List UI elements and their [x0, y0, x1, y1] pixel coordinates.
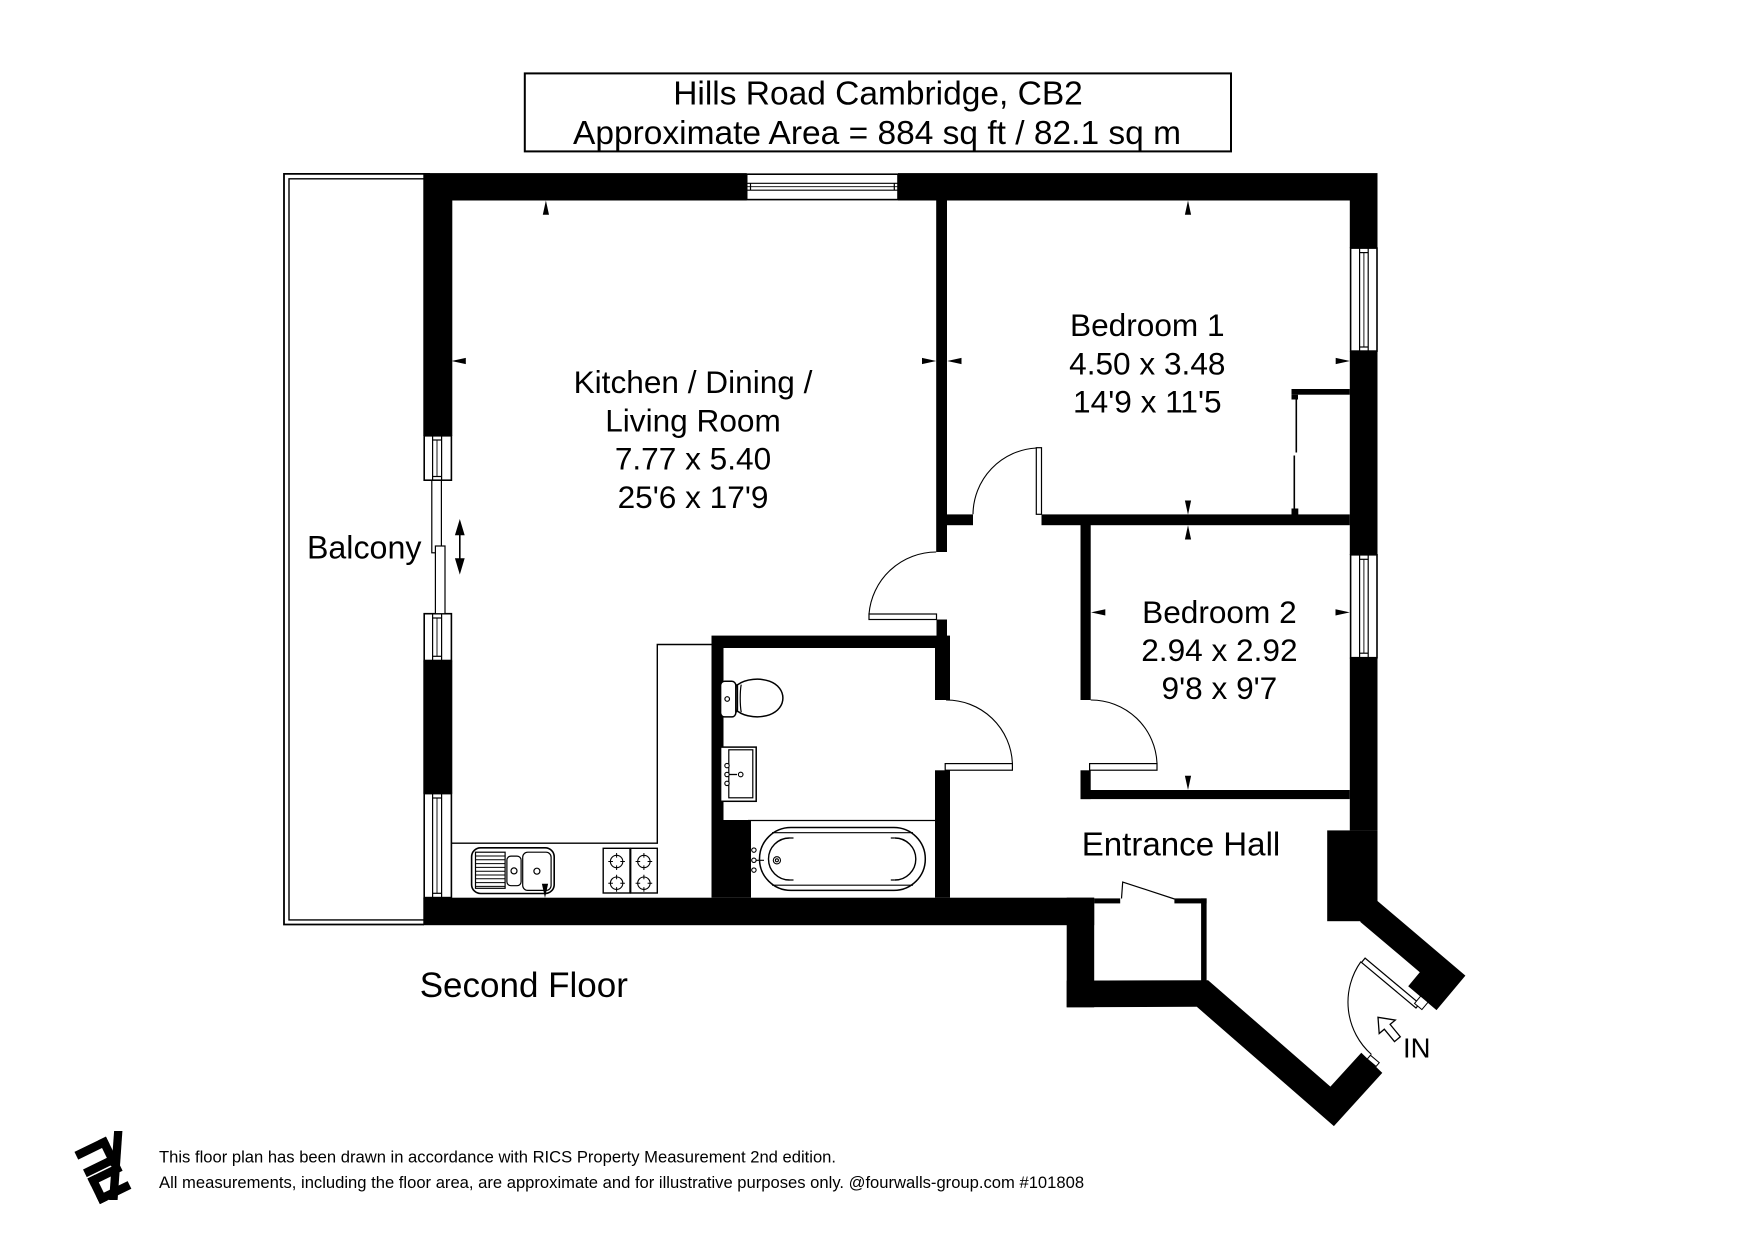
svg-text:Bedroom 2: Bedroom 2	[1142, 594, 1297, 630]
svg-text:Hills Road Cambridge, CB2: Hills Road Cambridge, CB2	[673, 76, 1083, 113]
svg-text:Kitchen / Dining /: Kitchen / Dining /	[574, 364, 813, 400]
svg-text:4.50 x 3.48: 4.50 x 3.48	[1069, 345, 1225, 381]
svg-text:Balcony: Balcony	[307, 529, 422, 565]
svg-text:14'9 x 11'5: 14'9 x 11'5	[1073, 384, 1222, 420]
svg-text:All measurements, including th: All measurements, including the floor ar…	[159, 1173, 1084, 1192]
svg-text:25'6 x 17'9: 25'6 x 17'9	[618, 479, 769, 515]
svg-text:IN: IN	[1403, 1033, 1431, 1064]
svg-text:Living Room: Living Room	[605, 402, 781, 438]
svg-text:7.77 x 5.40: 7.77 x 5.40	[615, 441, 771, 477]
svg-text:Entrance Hall: Entrance Hall	[1082, 827, 1281, 864]
svg-text:Second Floor: Second Floor	[420, 966, 629, 1005]
svg-text:2.94 x 2.92: 2.94 x 2.92	[1141, 632, 1297, 668]
svg-text:9'8 x 9'7: 9'8 x 9'7	[1162, 670, 1278, 706]
svg-text:Bedroom 1: Bedroom 1	[1070, 307, 1225, 343]
svg-text:This floor plan has been drawn: This floor plan has been drawn in accord…	[159, 1147, 836, 1166]
svg-text:Approximate Area = 884 sq ft /: Approximate Area = 884 sq ft / 82.1 sq m	[573, 115, 1181, 152]
